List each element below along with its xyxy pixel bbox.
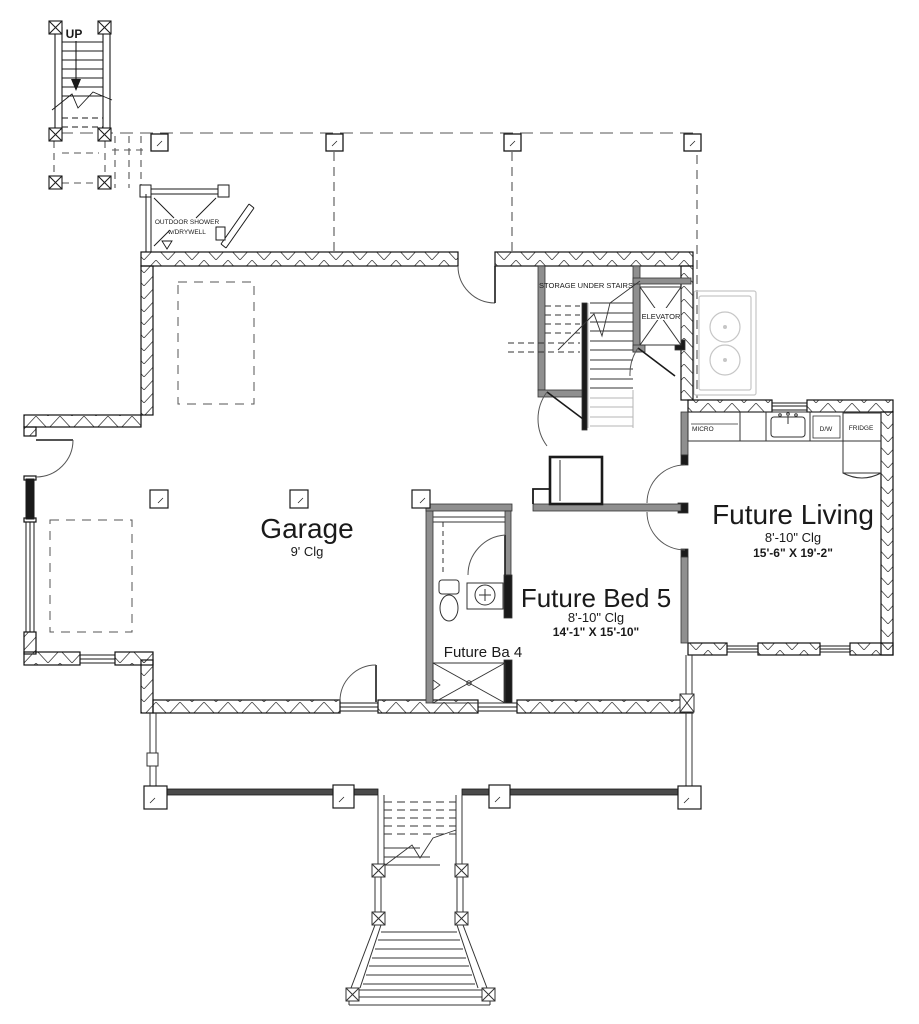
floor-plan-drawing: UP OUTDOOR SHOWER w/DRYWELL STORAGE UNDE… [0, 0, 919, 1024]
x-post [98, 21, 111, 34]
x-post [98, 176, 111, 189]
x-post [680, 694, 694, 712]
ghost-appliance-above [694, 291, 756, 395]
front-stairs [346, 795, 495, 1005]
fridge-box [843, 413, 881, 478]
x-post [372, 912, 385, 925]
garage-posts [150, 490, 430, 508]
door-storage [538, 392, 583, 446]
porch [144, 655, 701, 809]
shower [433, 663, 505, 703]
window-bed5-porch [478, 703, 517, 711]
outdoor-shower-label-1: OUTDOOR SHOWER [155, 219, 220, 226]
x-post [98, 128, 111, 141]
garage-features [50, 282, 430, 632]
bath-sink [467, 583, 503, 609]
living-dimensions-label: 15'-6" X 19'-2" [753, 546, 833, 560]
kitchen-sink [771, 413, 805, 437]
x-post [482, 988, 495, 1001]
storage-label: STORAGE UNDER STAIRS [539, 281, 633, 290]
living-ceiling-label: 8'-10" Clg [765, 530, 821, 545]
garage-door-left [26, 522, 34, 632]
door-threshold-porch [340, 703, 378, 711]
toilet [439, 580, 459, 621]
garage-ceiling-label: 9' Clg [291, 544, 324, 559]
fridge-label: FRIDGE [849, 425, 874, 432]
floor-plan-sheet: UP OUTDOOR SHOWER w/DRYWELL STORAGE UNDE… [0, 0, 919, 1024]
door-porch-entry [340, 665, 376, 702]
exterior-stair-upper [52, 27, 112, 140]
interior-stair [508, 281, 640, 428]
living-label: Future Living [712, 499, 874, 530]
window-garage-left [26, 479, 34, 519]
porch-posts [144, 785, 701, 809]
x-post [455, 864, 468, 877]
door-top-entry [458, 266, 495, 303]
labels: UP OUTDOOR SHOWER w/DRYWELL STORAGE UNDE… [66, 27, 874, 661]
opening-bump-bottom [80, 655, 115, 663]
x-post [49, 21, 62, 34]
x-post [372, 864, 385, 877]
bed5-dimensions-label: 14'-1" X 15'-10" [553, 625, 639, 639]
porch-rail [156, 789, 678, 795]
x-post [346, 988, 359, 1001]
dishwasher-label: D/W [820, 426, 834, 433]
window-living-1 [727, 646, 758, 652]
window-kitchen [772, 403, 807, 410]
x-post [49, 128, 62, 141]
bathroom [433, 517, 505, 703]
micro-label: MICRO [692, 426, 714, 433]
hall-closet [533, 457, 602, 504]
deck-posts [151, 134, 701, 151]
door-garage-side [36, 440, 73, 477]
door-bed5 [647, 512, 685, 550]
window-living-2 [820, 646, 850, 652]
bath4-label: Future Ba 4 [444, 644, 522, 661]
x-post [455, 912, 468, 925]
door-bed5-closet [468, 535, 505, 575]
kitchen-counter [688, 412, 881, 478]
outdoor-shower-label-2: w/DRYWELL [167, 229, 206, 236]
up-label: UP [66, 27, 83, 41]
bed5-label: Future Bed 5 [521, 583, 671, 613]
elevator-label: ELEVATOR [642, 312, 681, 321]
x-post [49, 176, 62, 189]
garage-label: Garage [260, 513, 353, 544]
door-hall-living [647, 465, 685, 503]
bed5-ceiling-label: 8'-10" Clg [568, 610, 624, 625]
